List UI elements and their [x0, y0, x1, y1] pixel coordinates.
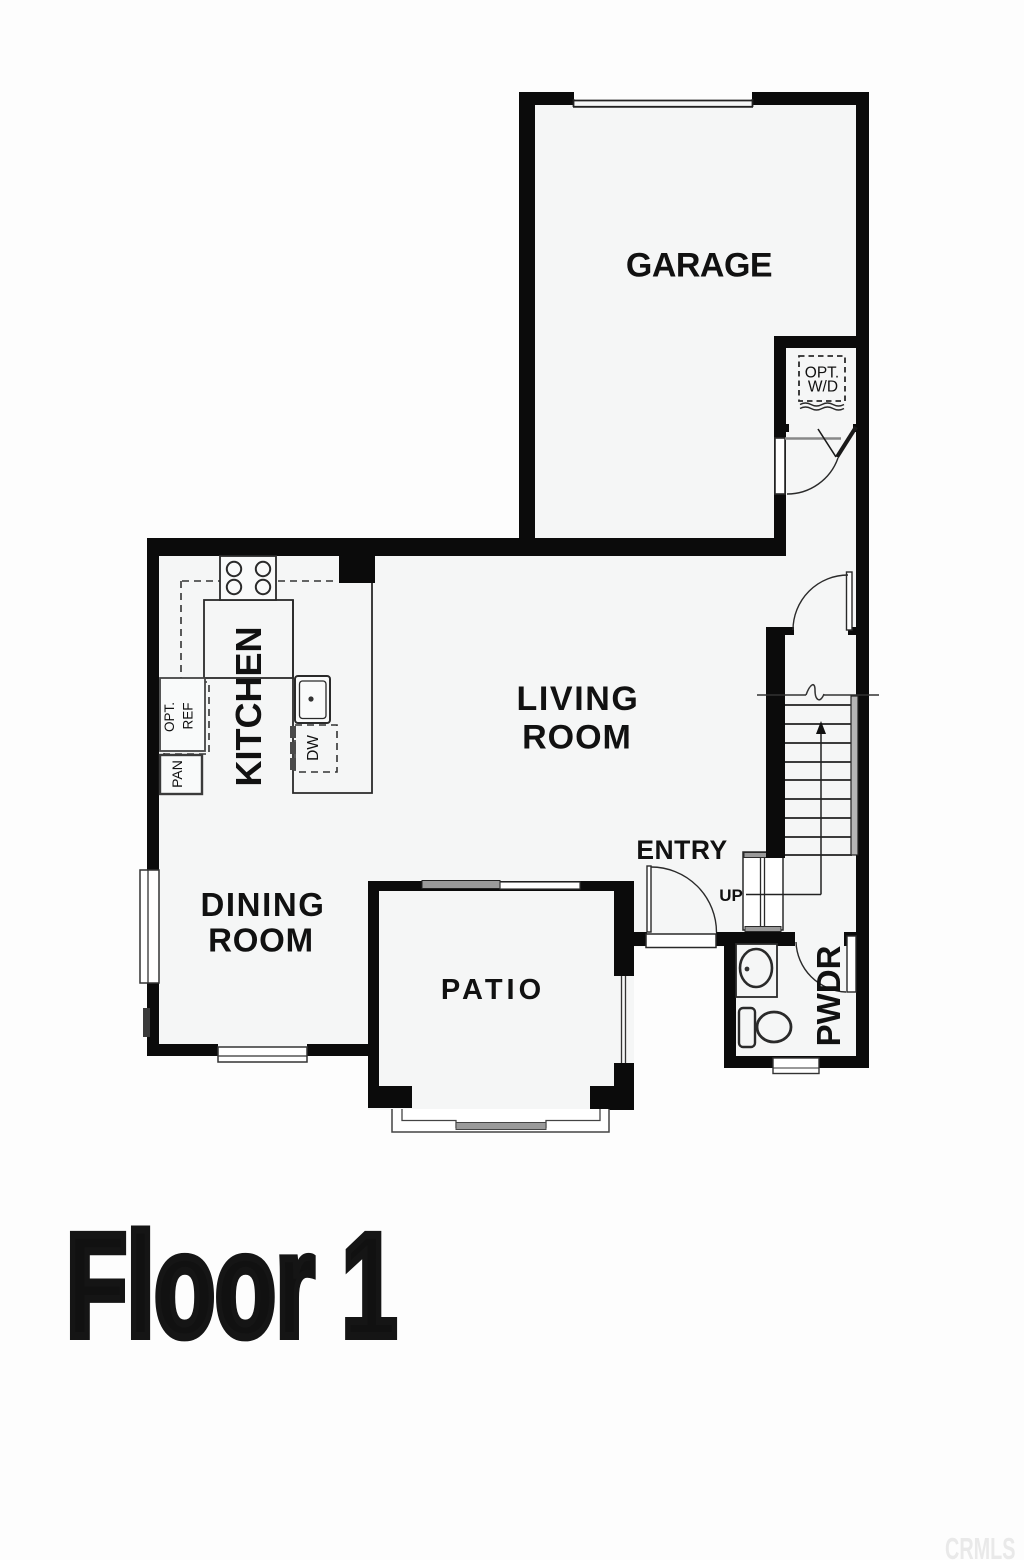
svg-text:ROOM: ROOM — [522, 719, 632, 757]
svg-text:ENTRY: ENTRY — [636, 835, 727, 865]
svg-text:DW: DW — [305, 735, 322, 761]
svg-text:ROOM: ROOM — [208, 922, 314, 959]
svg-text:GARAGE: GARAGE — [626, 247, 772, 285]
svg-text:OPT.: OPT. — [162, 702, 177, 732]
svg-text:REF: REF — [181, 703, 196, 730]
svg-text:PAN: PAN — [169, 760, 185, 788]
svg-text:Floor 1: Floor 1 — [66, 1203, 397, 1368]
svg-text:KITCHEN: KITCHEN — [228, 627, 269, 787]
svg-text:LIVING: LIVING — [517, 680, 640, 718]
svg-text:UP: UP — [719, 886, 743, 905]
svg-text:DINING: DINING — [200, 886, 325, 923]
svg-text:PATIO: PATIO — [441, 974, 545, 1006]
svg-text:CRMLS: CRMLS — [945, 1530, 1016, 1560]
svg-text:W/D: W/D — [808, 379, 838, 396]
svg-text:PWDR: PWDR — [810, 945, 847, 1046]
